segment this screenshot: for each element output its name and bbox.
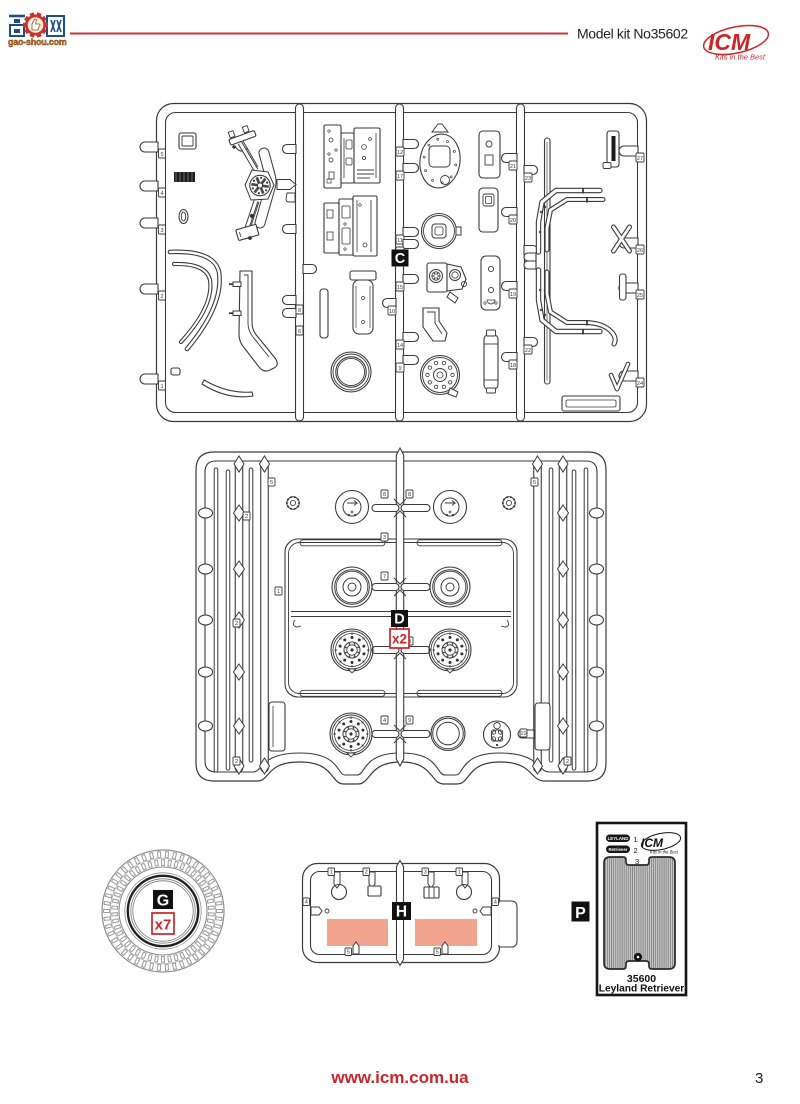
- svg-text:Retriever: Retriever: [608, 847, 627, 852]
- svg-text:3: 3: [424, 870, 427, 876]
- svg-text:10: 10: [520, 731, 526, 737]
- svg-text:4: 4: [494, 900, 497, 906]
- svg-text:5: 5: [270, 480, 273, 486]
- svg-text:21: 21: [510, 164, 516, 170]
- svg-text:1: 1: [634, 835, 638, 844]
- svg-text:5: 5: [436, 950, 439, 956]
- svg-text:Kits in the Best: Kits in the Best: [715, 53, 766, 62]
- svg-text:9: 9: [408, 718, 411, 724]
- svg-text:Model kit No35602: Model kit No35602: [577, 26, 688, 42]
- svg-text:17: 17: [397, 174, 403, 180]
- svg-text:8: 8: [298, 308, 301, 314]
- svg-text:5: 5: [160, 152, 163, 158]
- svg-text:2: 2: [235, 759, 238, 765]
- svg-text:2: 2: [566, 759, 569, 765]
- svg-text:2: 2: [245, 514, 248, 520]
- svg-text:4: 4: [160, 191, 163, 197]
- svg-text:H: H: [396, 904, 407, 921]
- svg-text:24: 24: [637, 381, 643, 387]
- svg-text:6: 6: [298, 329, 301, 335]
- svg-text:ICM: ICM: [708, 29, 751, 55]
- svg-text:1: 1: [160, 384, 163, 390]
- svg-text:25: 25: [637, 293, 643, 299]
- svg-text:1: 1: [277, 589, 280, 595]
- svg-text:G: G: [157, 893, 169, 910]
- svg-text:27: 27: [637, 156, 643, 162]
- svg-text:2: 2: [160, 294, 163, 300]
- svg-text:19: 19: [510, 292, 516, 298]
- svg-text:x7: x7: [155, 917, 172, 934]
- svg-text:2: 2: [365, 870, 368, 876]
- svg-text:P: P: [575, 905, 586, 922]
- svg-text:15: 15: [397, 285, 403, 291]
- svg-text:3: 3: [755, 1070, 763, 1087]
- svg-text:1: 1: [458, 870, 461, 876]
- svg-text:12: 12: [397, 150, 403, 156]
- svg-text:18: 18: [510, 363, 516, 369]
- svg-text:3: 3: [635, 857, 639, 866]
- svg-text:10: 10: [389, 309, 395, 315]
- svg-text:Leyland Retriever: Leyland Retriever: [599, 984, 685, 995]
- svg-text:2: 2: [235, 621, 238, 627]
- svg-text:x2: x2: [392, 632, 407, 647]
- svg-text:5: 5: [347, 950, 350, 956]
- svg-text:23: 23: [525, 176, 531, 182]
- svg-text:9: 9: [398, 366, 401, 372]
- svg-text:22: 22: [525, 348, 531, 354]
- svg-text:gao-shou.com: gao-shou.com: [8, 37, 67, 47]
- svg-text:20: 20: [510, 218, 516, 224]
- svg-text:14: 14: [397, 343, 403, 349]
- svg-text:8: 8: [383, 492, 386, 498]
- svg-text:3: 3: [383, 535, 386, 541]
- svg-text:7: 7: [383, 574, 386, 580]
- svg-text:1: 1: [330, 870, 333, 876]
- svg-text:3: 3: [160, 228, 163, 234]
- svg-text:26: 26: [637, 248, 643, 254]
- svg-text:4: 4: [383, 718, 386, 724]
- svg-text:www.icm.com.ua: www.icm.com.ua: [330, 1068, 469, 1087]
- svg-text:Kits in the Best: Kits in the Best: [650, 850, 679, 855]
- svg-text:ICM: ICM: [641, 836, 664, 850]
- svg-text:D: D: [394, 612, 404, 628]
- svg-text:4: 4: [305, 900, 308, 906]
- svg-text:LEYLAND: LEYLAND: [608, 836, 629, 841]
- svg-text:8: 8: [408, 492, 411, 498]
- svg-text:C: C: [395, 251, 406, 267]
- svg-text:5: 5: [533, 480, 536, 486]
- svg-text:11: 11: [397, 238, 403, 244]
- svg-text:2: 2: [634, 846, 638, 855]
